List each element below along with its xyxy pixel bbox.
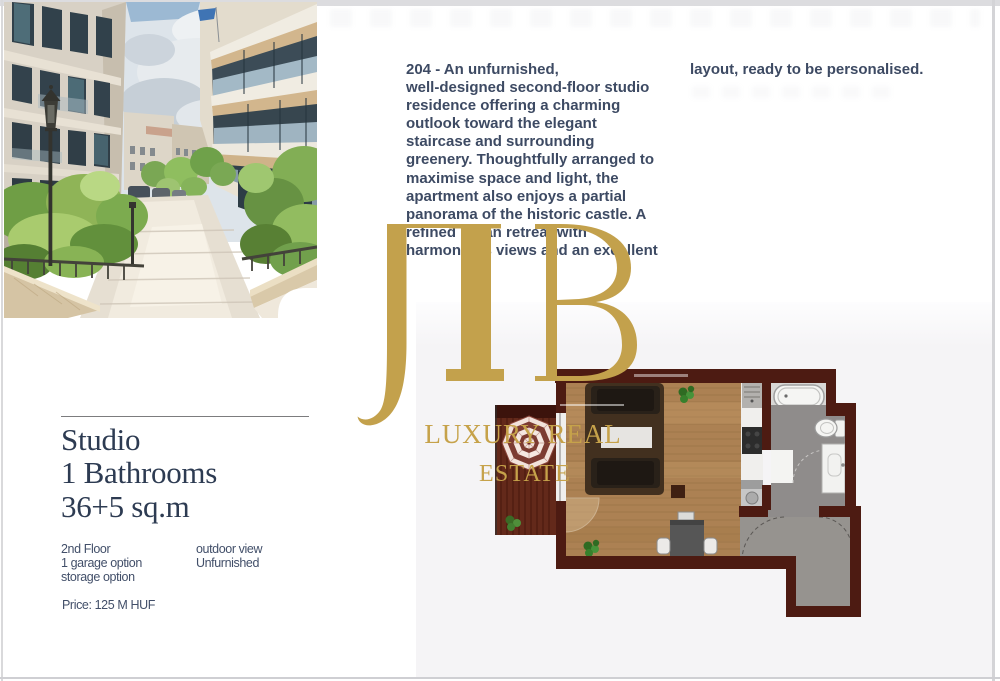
svg-text:ESTATE: ESTATE	[479, 461, 571, 487]
svg-text:LUXURY REAL: LUXURY REAL	[424, 419, 621, 449]
